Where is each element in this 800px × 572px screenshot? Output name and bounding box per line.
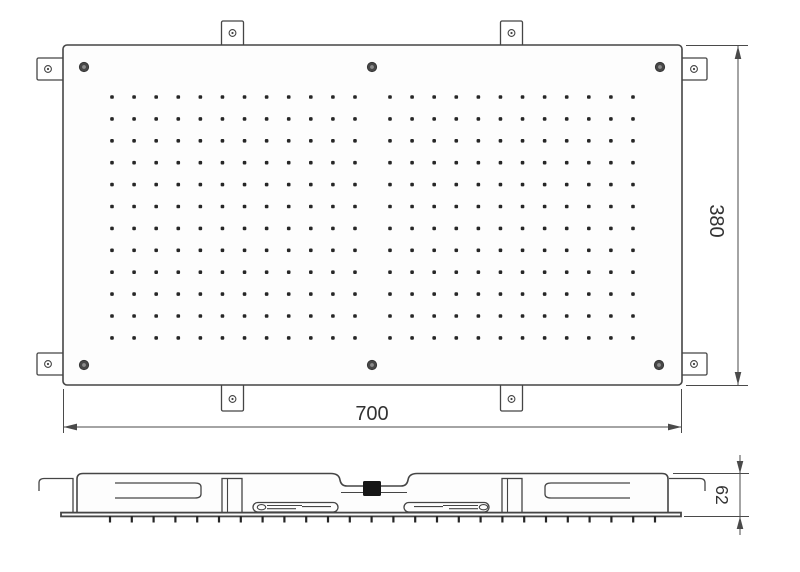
- side-view: [39, 474, 705, 523]
- nozzle-dot: [154, 292, 158, 296]
- nozzle-dot: [221, 314, 225, 318]
- nozzle-dot: [199, 95, 203, 99]
- nozzle-dot: [454, 161, 458, 165]
- nozzle-dot: [477, 227, 481, 231]
- nozzle-dot: [543, 139, 547, 143]
- nozzle-dot: [199, 227, 203, 231]
- nozzle-dot: [199, 161, 203, 165]
- nozzle-dot: [287, 95, 291, 99]
- nozzle-dot: [243, 183, 247, 187]
- nozzle-dot: [243, 161, 247, 165]
- nozzle-dot: [265, 336, 269, 340]
- nozzle-dot: [221, 270, 225, 274]
- nozzle-dot: [631, 183, 635, 187]
- tab-hole-center: [47, 363, 49, 365]
- nozzle-dot: [287, 183, 291, 187]
- nozzle-dot: [609, 249, 613, 253]
- nozzle-dot: [388, 183, 392, 187]
- nozzle-dot: [587, 314, 591, 318]
- nozzle-dot: [543, 314, 547, 318]
- nozzle-dot: [631, 227, 635, 231]
- nozzle-dot: [477, 161, 481, 165]
- nozzle-dot: [132, 205, 136, 209]
- nozzle-dot: [309, 205, 313, 209]
- nozzle-dot: [221, 205, 225, 209]
- nozzle-dot: [287, 139, 291, 143]
- nozzle-dot: [132, 95, 136, 99]
- nozzle-dot: [176, 117, 180, 121]
- nozzle-dot: [432, 95, 436, 99]
- nozzle-dot: [543, 117, 547, 121]
- nozzle-dot: [331, 227, 335, 231]
- nozzle-dot: [287, 292, 291, 296]
- nozzle-dot: [176, 314, 180, 318]
- nozzle-dot: [631, 139, 635, 143]
- nozzle-dot: [132, 117, 136, 121]
- nozzle-dot: [499, 249, 503, 253]
- spray-plate: [61, 513, 681, 517]
- arrowhead-bottom-icon: [735, 372, 742, 385]
- nozzle-dot: [477, 292, 481, 296]
- nozzle-dot: [609, 227, 613, 231]
- nozzle-dot: [454, 314, 458, 318]
- nozzle-dot: [521, 336, 525, 340]
- nozzle-dot: [154, 270, 158, 274]
- nozzle-dot: [477, 249, 481, 253]
- nozzle-dot: [110, 227, 114, 231]
- nozzle-dot: [243, 249, 247, 253]
- nozzle-dot: [265, 117, 269, 121]
- nozzle-dot: [110, 117, 114, 121]
- nozzle-dot: [410, 139, 414, 143]
- height-dimension: 380: [686, 46, 748, 386]
- nozzle-dot: [221, 161, 225, 165]
- arrowhead-top-icon: [737, 461, 744, 474]
- tab-hole-center: [693, 68, 695, 70]
- nozzle-dot: [432, 183, 436, 187]
- nozzle-dot: [587, 161, 591, 165]
- nozzle-dot: [331, 249, 335, 253]
- nozzle-dot: [587, 270, 591, 274]
- nozzle-dot: [154, 95, 158, 99]
- nozzle-dot: [477, 183, 481, 187]
- nozzle-dot: [432, 270, 436, 274]
- nozzle-dot: [454, 227, 458, 231]
- nozzle-dot: [631, 95, 635, 99]
- nozzle-dot: [565, 117, 569, 121]
- nozzle-dot: [221, 249, 225, 253]
- width-dimension: 700: [64, 389, 682, 433]
- nozzle-dot: [499, 292, 503, 296]
- nozzle-dot: [432, 292, 436, 296]
- left-mount-hook: [39, 479, 73, 513]
- nozzle-dot: [265, 249, 269, 253]
- nozzle-dot: [154, 227, 158, 231]
- nozzle-dot: [565, 336, 569, 340]
- mounting-tab: [222, 384, 244, 411]
- nozzle-dot: [176, 205, 180, 209]
- nozzle-dot: [454, 205, 458, 209]
- nozzle-dot: [132, 292, 136, 296]
- nozzle-dot: [521, 270, 525, 274]
- tab-hole-center: [510, 32, 512, 34]
- nozzle-dot: [521, 95, 525, 99]
- nozzle-dot: [565, 183, 569, 187]
- nozzle-dot: [221, 227, 225, 231]
- nozzle-dot: [410, 270, 414, 274]
- nozzle-dot: [410, 161, 414, 165]
- nozzle-dot: [521, 117, 525, 121]
- nozzle-dot: [176, 227, 180, 231]
- nozzle-dot: [176, 139, 180, 143]
- nozzle-dot: [432, 249, 436, 253]
- nozzle-dot: [432, 314, 436, 318]
- nozzle-dot: [609, 270, 613, 274]
- nozzle-dot: [609, 314, 613, 318]
- nozzle-dot: [331, 117, 335, 121]
- nozzle-dot: [353, 336, 357, 340]
- nozzle-dot: [477, 336, 481, 340]
- nozzle-dot: [454, 183, 458, 187]
- nozzle-dot: [243, 227, 247, 231]
- nozzle-dot: [110, 336, 114, 340]
- nozzle-dot: [454, 336, 458, 340]
- height-dimension-label: 380: [705, 204, 727, 237]
- top-view: [37, 21, 707, 411]
- nozzle-dot: [154, 161, 158, 165]
- nozzle-dot: [309, 161, 313, 165]
- nozzle-dot: [521, 139, 525, 143]
- nozzle-dot: [221, 183, 225, 187]
- nozzle-dot: [565, 270, 569, 274]
- nozzle-dot: [199, 336, 203, 340]
- mounting-tab: [37, 353, 64, 375]
- nozzle-dot: [243, 292, 247, 296]
- nozzle-dot: [499, 270, 503, 274]
- nozzle-dot: [309, 139, 313, 143]
- tab-hole-center: [231, 398, 233, 400]
- nozzle-dot: [221, 336, 225, 340]
- nozzle-dot: [388, 117, 392, 121]
- nozzle-dot: [521, 249, 525, 253]
- nozzle-dot: [353, 227, 357, 231]
- nozzle-dot: [587, 336, 591, 340]
- nozzle-dot: [543, 205, 547, 209]
- nozzle-dot: [287, 336, 291, 340]
- nozzle-dot: [477, 139, 481, 143]
- nozzle-dot: [132, 336, 136, 340]
- nozzle-dot: [631, 336, 635, 340]
- nozzle-dot: [110, 314, 114, 318]
- nozzle-dot: [499, 314, 503, 318]
- nozzle-dot: [499, 139, 503, 143]
- nozzle-dot: [410, 249, 414, 253]
- nozzle-dot: [331, 161, 335, 165]
- nozzle-dot: [353, 183, 357, 187]
- nozzle-dot: [353, 95, 357, 99]
- nozzle-dot: [331, 270, 335, 274]
- nozzle-dot: [265, 205, 269, 209]
- nozzle-dot: [353, 139, 357, 143]
- nozzle-dot: [265, 95, 269, 99]
- nozzle-dot: [499, 183, 503, 187]
- nozzle-dot: [587, 205, 591, 209]
- nozzle-dot: [110, 161, 114, 165]
- nozzle-dot: [388, 336, 392, 340]
- nozzle-dot: [176, 161, 180, 165]
- nozzle-dot: [631, 314, 635, 318]
- screw-head-center: [82, 363, 86, 367]
- nozzle-dot: [353, 249, 357, 253]
- nozzle-dot: [388, 161, 392, 165]
- nozzle-dot: [410, 292, 414, 296]
- nozzle-dot: [454, 292, 458, 296]
- nozzle-dot: [631, 117, 635, 121]
- nozzle-dot: [154, 336, 158, 340]
- nozzle-dot: [410, 227, 414, 231]
- nozzle-dot: [543, 95, 547, 99]
- nozzle-dot: [287, 249, 291, 253]
- nozzle-dot: [565, 292, 569, 296]
- nozzle-dot: [243, 336, 247, 340]
- nozzle-dot: [499, 336, 503, 340]
- nozzle-dot: [176, 95, 180, 99]
- nozzle-dot: [631, 292, 635, 296]
- nozzle-dot: [309, 336, 313, 340]
- nozzle-dot: [565, 249, 569, 253]
- tab-hole-center: [231, 32, 233, 34]
- nozzle-dot: [609, 117, 613, 121]
- nozzle-dot: [309, 249, 313, 253]
- nozzle-dot: [110, 205, 114, 209]
- nozzle-dot: [265, 183, 269, 187]
- nozzle-dot: [309, 117, 313, 121]
- nozzle-dot: [432, 161, 436, 165]
- nozzle-dot: [543, 336, 547, 340]
- nozzle-dot: [410, 117, 414, 121]
- nozzle-dot: [454, 117, 458, 121]
- nozzle-dot: [388, 227, 392, 231]
- nozzle-dot: [454, 270, 458, 274]
- nozzle-dot: [199, 270, 203, 274]
- nozzle-dot: [243, 139, 247, 143]
- nozzle-dot: [432, 336, 436, 340]
- nozzle-dot: [154, 183, 158, 187]
- nozzle-dot: [154, 314, 158, 318]
- tab-hole-center: [510, 398, 512, 400]
- width-dimension-label: 700: [355, 403, 388, 425]
- nozzle-dot: [309, 95, 313, 99]
- nozzle-dot: [176, 249, 180, 253]
- nozzle-dot: [587, 227, 591, 231]
- nozzle-dot: [331, 205, 335, 209]
- nozzle-dot: [609, 183, 613, 187]
- screw-head-center: [657, 363, 661, 367]
- nozzle-dot: [543, 249, 547, 253]
- nozzle-dot: [353, 205, 357, 209]
- nozzle-dot: [609, 205, 613, 209]
- nozzle-dot: [132, 161, 136, 165]
- nozzle-dot: [287, 117, 291, 121]
- nozzle-dot: [221, 292, 225, 296]
- tab-hole-center: [47, 68, 49, 70]
- nozzle-dot: [132, 249, 136, 253]
- nozzle-dot: [243, 205, 247, 209]
- nozzle-dot: [521, 227, 525, 231]
- nozzle-dot: [132, 270, 136, 274]
- nozzle-dot: [176, 270, 180, 274]
- nozzle-dot: [309, 227, 313, 231]
- depth-dimension-label: 62: [712, 485, 732, 504]
- nozzle-dot: [243, 270, 247, 274]
- nozzle-dot: [221, 95, 225, 99]
- nozzle-dot: [199, 183, 203, 187]
- nozzle-dot: [477, 117, 481, 121]
- nozzle-dot: [154, 205, 158, 209]
- nozzle-dot: [432, 205, 436, 209]
- arrowhead-bottom-icon: [737, 517, 744, 530]
- nozzle-dot: [477, 270, 481, 274]
- water-inlet-connector: [363, 481, 381, 496]
- nozzle-dot: [353, 314, 357, 318]
- nozzle-dot: [388, 292, 392, 296]
- mounting-tab: [501, 384, 523, 411]
- nozzle-dot: [110, 292, 114, 296]
- nozzle-dot: [154, 249, 158, 253]
- nozzle-dot: [587, 292, 591, 296]
- nozzle-dot: [565, 314, 569, 318]
- nozzle-dot: [499, 205, 503, 209]
- nozzle-dot: [154, 139, 158, 143]
- nozzle-dot: [631, 161, 635, 165]
- nozzle-dot: [265, 292, 269, 296]
- nozzle-dot: [110, 183, 114, 187]
- nozzle-dot: [132, 227, 136, 231]
- nozzle-dot: [499, 117, 503, 121]
- nozzle-dot: [609, 336, 613, 340]
- screw-head-center: [370, 363, 374, 367]
- nozzle-dot: [388, 314, 392, 318]
- arrowhead-top-icon: [735, 46, 742, 59]
- nozzle-dot: [410, 205, 414, 209]
- technical-drawing: 700 380: [0, 0, 800, 572]
- nozzle-dot: [110, 95, 114, 99]
- nozzle-dot: [543, 161, 547, 165]
- nozzle-dot: [587, 139, 591, 143]
- nozzle-dot: [543, 292, 547, 296]
- nozzle-dot: [410, 336, 414, 340]
- screw-head-center: [370, 65, 374, 69]
- nozzle-dot: [565, 227, 569, 231]
- nozzle-dot: [609, 139, 613, 143]
- nozzle-dot: [587, 183, 591, 187]
- drawing-canvas: 700 380: [0, 0, 800, 572]
- nozzle-dot: [587, 249, 591, 253]
- nozzle-dot: [132, 139, 136, 143]
- nozzle-dot: [265, 227, 269, 231]
- nozzle-dot: [265, 161, 269, 165]
- nozzle-dot: [176, 292, 180, 296]
- nozzle-dot: [410, 95, 414, 99]
- nozzle-dot: [521, 205, 525, 209]
- nozzle-dot: [587, 117, 591, 121]
- nozzle-dot: [309, 292, 313, 296]
- nozzle-dot: [432, 227, 436, 231]
- nozzle-dot: [199, 205, 203, 209]
- nozzle-dot: [388, 95, 392, 99]
- nozzle-dot: [410, 314, 414, 318]
- mounting-tab: [37, 58, 64, 80]
- nozzle-dot: [565, 95, 569, 99]
- nozzle-dot: [432, 117, 436, 121]
- nozzle-dot: [565, 205, 569, 209]
- nozzle-dot: [609, 95, 613, 99]
- nozzle-dot: [388, 205, 392, 209]
- nozzle-dot: [331, 336, 335, 340]
- nozzle-dot: [199, 314, 203, 318]
- nozzle-dot: [499, 95, 503, 99]
- nozzle-dot: [477, 314, 481, 318]
- screw-head-center: [658, 65, 662, 69]
- nozzle-dot: [287, 227, 291, 231]
- nozzle-dot: [609, 161, 613, 165]
- nozzle-dot: [353, 161, 357, 165]
- nozzle-dot: [353, 117, 357, 121]
- nozzle-dot: [199, 249, 203, 253]
- nozzle-dot: [432, 139, 436, 143]
- arrowhead-right-icon: [668, 424, 682, 431]
- nozzle-dot: [454, 139, 458, 143]
- nozzle-dot: [454, 95, 458, 99]
- nozzle-dot: [243, 314, 247, 318]
- nozzle-dot: [521, 183, 525, 187]
- screw-head-center: [82, 65, 86, 69]
- nozzle-dot: [176, 336, 180, 340]
- nozzle-dot: [477, 205, 481, 209]
- nozzle-dot: [388, 270, 392, 274]
- nozzle-dot: [353, 292, 357, 296]
- nozzle-dot: [499, 227, 503, 231]
- nozzle-dot: [565, 161, 569, 165]
- nozzle-dot: [265, 139, 269, 143]
- nozzle-dot: [499, 161, 503, 165]
- nozzle-dot: [287, 205, 291, 209]
- nozzle-dot: [309, 270, 313, 274]
- nozzle-dot: [287, 270, 291, 274]
- nozzle-dot: [110, 139, 114, 143]
- nozzle-dot: [631, 249, 635, 253]
- nozzle-dot: [353, 270, 357, 274]
- nozzle-dot: [199, 139, 203, 143]
- nozzle-dot: [543, 270, 547, 274]
- nozzle-dot: [521, 314, 525, 318]
- nozzle-dot: [543, 227, 547, 231]
- nozzle-dot: [154, 117, 158, 121]
- nozzle-dot: [287, 161, 291, 165]
- nozzle-dot: [221, 139, 225, 143]
- nozzle-dot: [543, 183, 547, 187]
- nozzle-dot: [477, 95, 481, 99]
- nozzle-dot: [199, 292, 203, 296]
- nozzle-dot: [631, 205, 635, 209]
- nozzle-dot: [565, 139, 569, 143]
- nozzle-dot: [309, 314, 313, 318]
- right-mount-hook: [669, 479, 705, 492]
- nozzle-dot: [521, 161, 525, 165]
- tab-hole-center: [693, 363, 695, 365]
- nozzle-dot: [331, 292, 335, 296]
- nozzle-dot: [609, 292, 613, 296]
